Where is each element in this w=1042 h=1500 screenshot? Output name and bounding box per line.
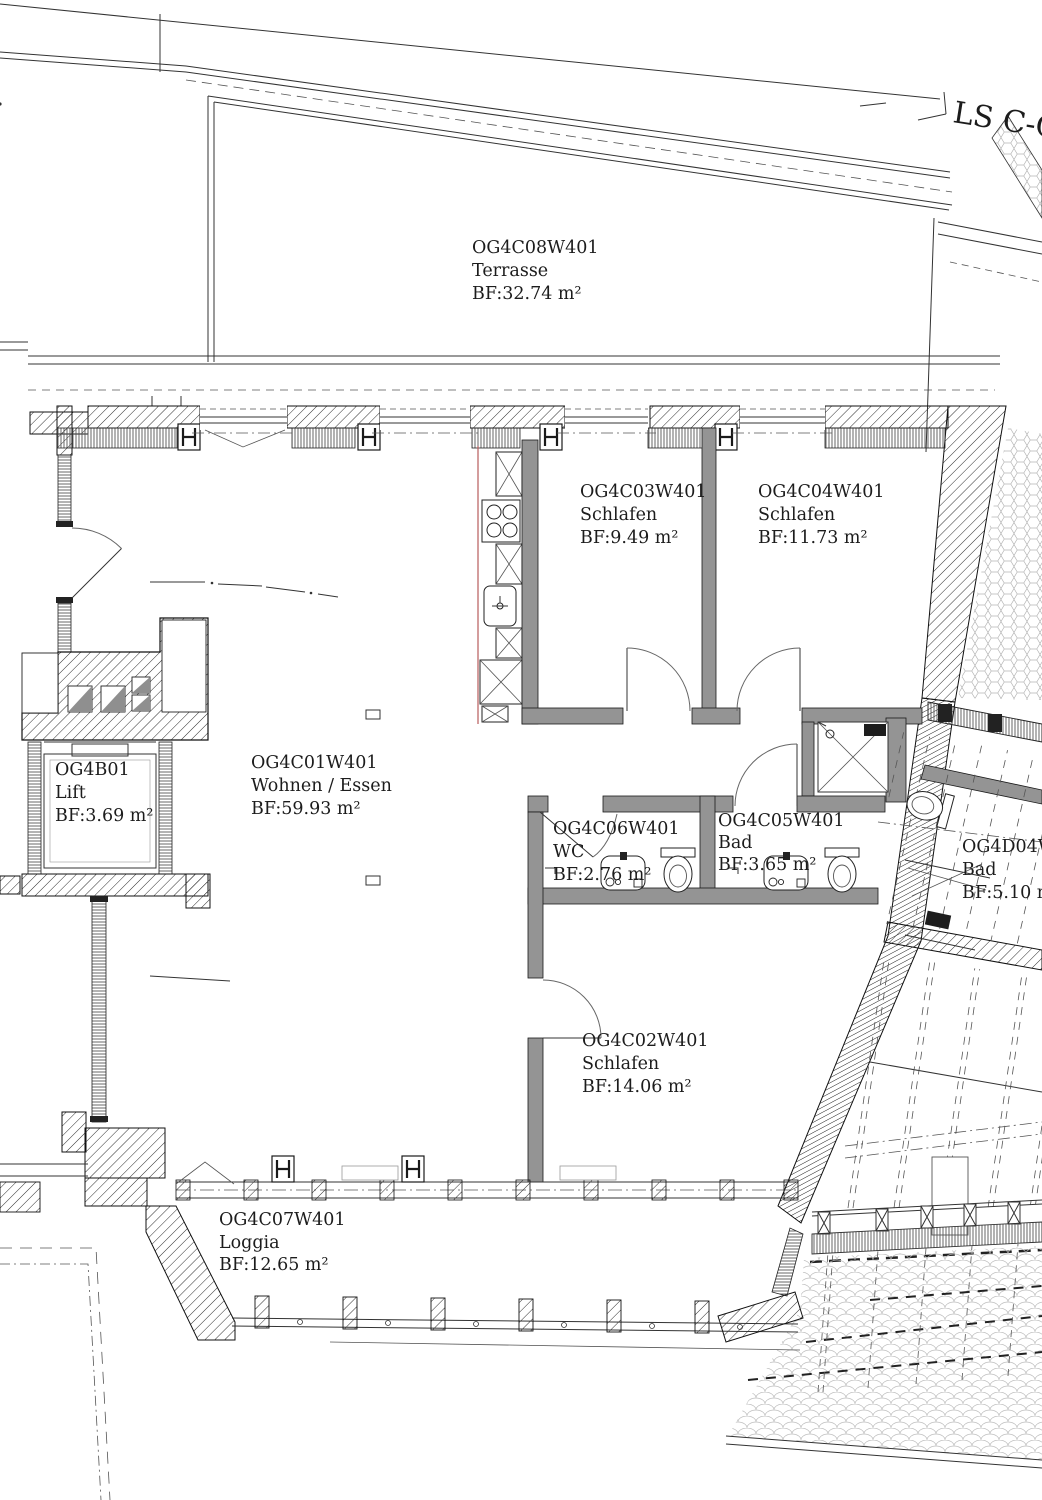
railing-post <box>818 1212 830 1234</box>
cooktop-icon <box>482 500 520 542</box>
kitchen-cabinet <box>496 544 522 584</box>
room-id: OG4C08W401 <box>472 238 599 258</box>
room-name: Schlafen <box>580 505 657 525</box>
loggia-glazing-band <box>176 1156 798 1200</box>
kitchen-cabinet <box>496 628 522 658</box>
door-leaf <box>932 1157 968 1235</box>
toilet-icon <box>661 848 695 892</box>
room-id: OG4C03W401 <box>580 482 707 502</box>
room-id: OG4D04W <box>962 837 1042 857</box>
room-label-schlafen-c04: OG4C04W401 Schlafen BF:11.73 m² <box>758 482 885 548</box>
room-name: Terrasse <box>472 261 548 281</box>
shaft-symbol <box>132 677 150 693</box>
room-name: Schlafen <box>582 1054 659 1074</box>
room-area: BF:3.69 m² <box>55 806 153 826</box>
room-name: Lift <box>55 783 86 803</box>
door-bad-c05 <box>735 744 797 806</box>
room-id: OG4C01W401 <box>251 753 378 773</box>
toilet-icon <box>825 848 859 892</box>
room-id: OG4B01 <box>55 760 130 780</box>
window <box>732 404 833 433</box>
room-id: OG4C02W401 <box>582 1031 709 1051</box>
kitchen-cabinet <box>496 452 522 496</box>
room-area: BF:2.76 m² <box>553 865 651 885</box>
room-label-lift: OG4B01 Lift BF:3.69 m² <box>55 760 153 826</box>
door-schlafen-c04 <box>737 648 800 711</box>
room-id: OG4C07W401 <box>219 1210 346 1230</box>
room-label-bad-d04: OG4D04W Bad BF:5.10 m <box>962 837 1042 903</box>
room-area: BF:3.65 m² <box>718 855 816 875</box>
room-label-bad-c05: OG4C05W401 Bad BF:3.65 m² <box>718 811 845 875</box>
room-id: OG4C04W401 <box>758 482 885 502</box>
railing-post <box>964 1204 976 1226</box>
steel-column-icon <box>178 424 200 450</box>
steel-column-icon <box>715 424 737 450</box>
roof-tiles <box>728 1246 1042 1460</box>
room-area: BF:5.10 m <box>962 883 1042 903</box>
terrace-outline <box>0 4 1042 452</box>
railing-post <box>1008 1202 1020 1224</box>
room-label-terrasse: OG4C08W401 Terrasse BF:32.74 m² <box>472 238 599 304</box>
room-area: BF:11.73 m² <box>758 528 868 548</box>
room-name: Wohnen / Essen <box>251 776 392 796</box>
kitchen-cabinet <box>480 660 522 704</box>
room-name: WC <box>553 842 584 862</box>
window <box>192 404 295 433</box>
steel-column-icon <box>402 1156 424 1182</box>
kitchen-sink-icon <box>484 586 516 626</box>
kitchen-cabinet <box>482 706 508 722</box>
room-name: Loggia <box>219 1233 280 1253</box>
room-area: BF:9.49 m² <box>580 528 678 548</box>
room-name: Bad <box>962 860 997 880</box>
steel-column-icon <box>272 1156 294 1182</box>
room-area: BF:59.93 m² <box>251 799 361 819</box>
section-mark: LS C-C <box>0 92 1042 146</box>
room-id: OG4C05W401 <box>718 811 845 831</box>
shaft-symbol <box>68 686 92 712</box>
window <box>372 404 478 433</box>
kitchen <box>478 446 522 724</box>
room-label-wohnen: OG4C01W401 Wohnen / Essen BF:59.93 m² <box>251 753 392 819</box>
window <box>557 404 656 433</box>
room-name: Bad <box>718 833 753 853</box>
room-label-schlafen-c03: OG4C03W401 Schlafen BF:9.49 m² <box>580 482 707 548</box>
room-area: BF:12.65 m² <box>219 1255 329 1275</box>
room-label-schlafen-c02: OG4C02W401 Schlafen BF:14.06 m² <box>582 1031 709 1097</box>
room-area: BF:14.06 m² <box>582 1077 692 1097</box>
shower-icon <box>818 722 888 792</box>
door-schlafen-c03 <box>627 648 690 711</box>
shaft-symbol <box>101 686 125 712</box>
shaft-symbol <box>132 695 150 711</box>
steel-column-icon <box>540 424 562 450</box>
railing-post <box>921 1206 933 1228</box>
site-boundary <box>0 1164 110 1500</box>
tilt-window-icon <box>205 430 285 447</box>
west-facade-band <box>90 896 108 1122</box>
loggia <box>62 1112 803 1350</box>
entrance-door <box>72 528 122 598</box>
loggia-railing <box>232 1296 800 1350</box>
room-id: OG4C06W401 <box>553 819 680 839</box>
room-name: Schlafen <box>758 505 835 525</box>
steel-column-icon <box>358 424 380 450</box>
door-schlafen-c02 <box>543 980 601 1038</box>
railing-post <box>876 1209 888 1231</box>
room-label-loggia: OG4C07W401 Loggia BF:12.65 m² <box>219 1210 346 1275</box>
floor-plan: LS C-C <box>0 0 1042 1500</box>
left-wall <box>56 455 122 652</box>
room-area: BF:32.74 m² <box>472 284 582 304</box>
